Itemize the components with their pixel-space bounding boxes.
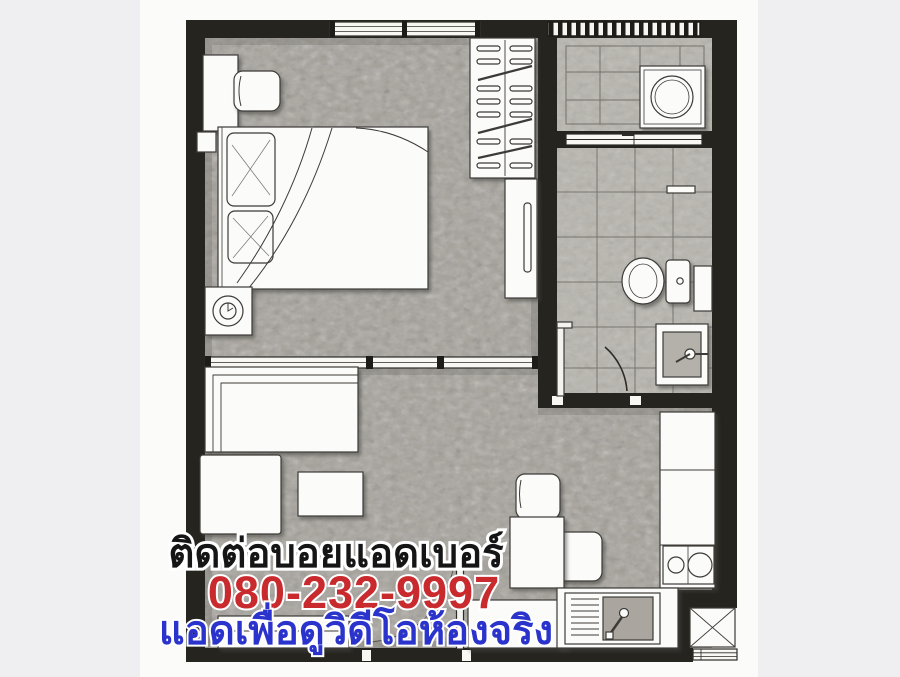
wall-right	[712, 20, 737, 592]
toilet	[622, 258, 690, 304]
stove-two-burners	[663, 546, 714, 584]
wardrobe	[470, 38, 535, 178]
stool	[234, 71, 280, 111]
bedroom-window	[330, 21, 480, 37]
contact-line3: แอดเพื่อดูวิดีโอห้องจริง	[159, 602, 553, 655]
refrigerator	[690, 608, 735, 647]
kitchen-sink	[557, 588, 678, 648]
dining-chair-top	[516, 474, 560, 519]
contact-overlay: ติดต่อบอยแอดเบอร์ 080-232-9997 แอดเพื่อด…	[159, 531, 553, 655]
sofa	[205, 367, 358, 452]
door-threshold	[693, 649, 737, 660]
wall-unit	[197, 132, 216, 152]
bed	[218, 127, 428, 289]
floorplan-photo: ติดต่อบอยแอดเบอร์ 080-232-9997 แอดเพื่อด…	[0, 0, 900, 677]
toilet-shelf	[694, 266, 712, 311]
wall-niche-top	[676, 590, 737, 608]
balcony-sliding-door	[566, 132, 702, 145]
wall-middle	[538, 38, 557, 408]
dining-table	[510, 517, 564, 588]
washing-machine	[640, 66, 705, 128]
towel-bar	[667, 186, 695, 193]
desk	[203, 55, 238, 131]
tall-cabinet	[505, 179, 537, 298]
nightstand	[205, 287, 252, 335]
kitchen-counter	[660, 412, 715, 588]
floor-plan-drawing: ติดต่อบอยแอดเบอร์ 080-232-9997 แอดเพื่อด…	[0, 0, 900, 677]
bathroom-sink	[656, 324, 708, 385]
balcony-louver-window	[548, 22, 700, 36]
ottoman	[200, 455, 281, 534]
coffee-table	[298, 472, 363, 516]
